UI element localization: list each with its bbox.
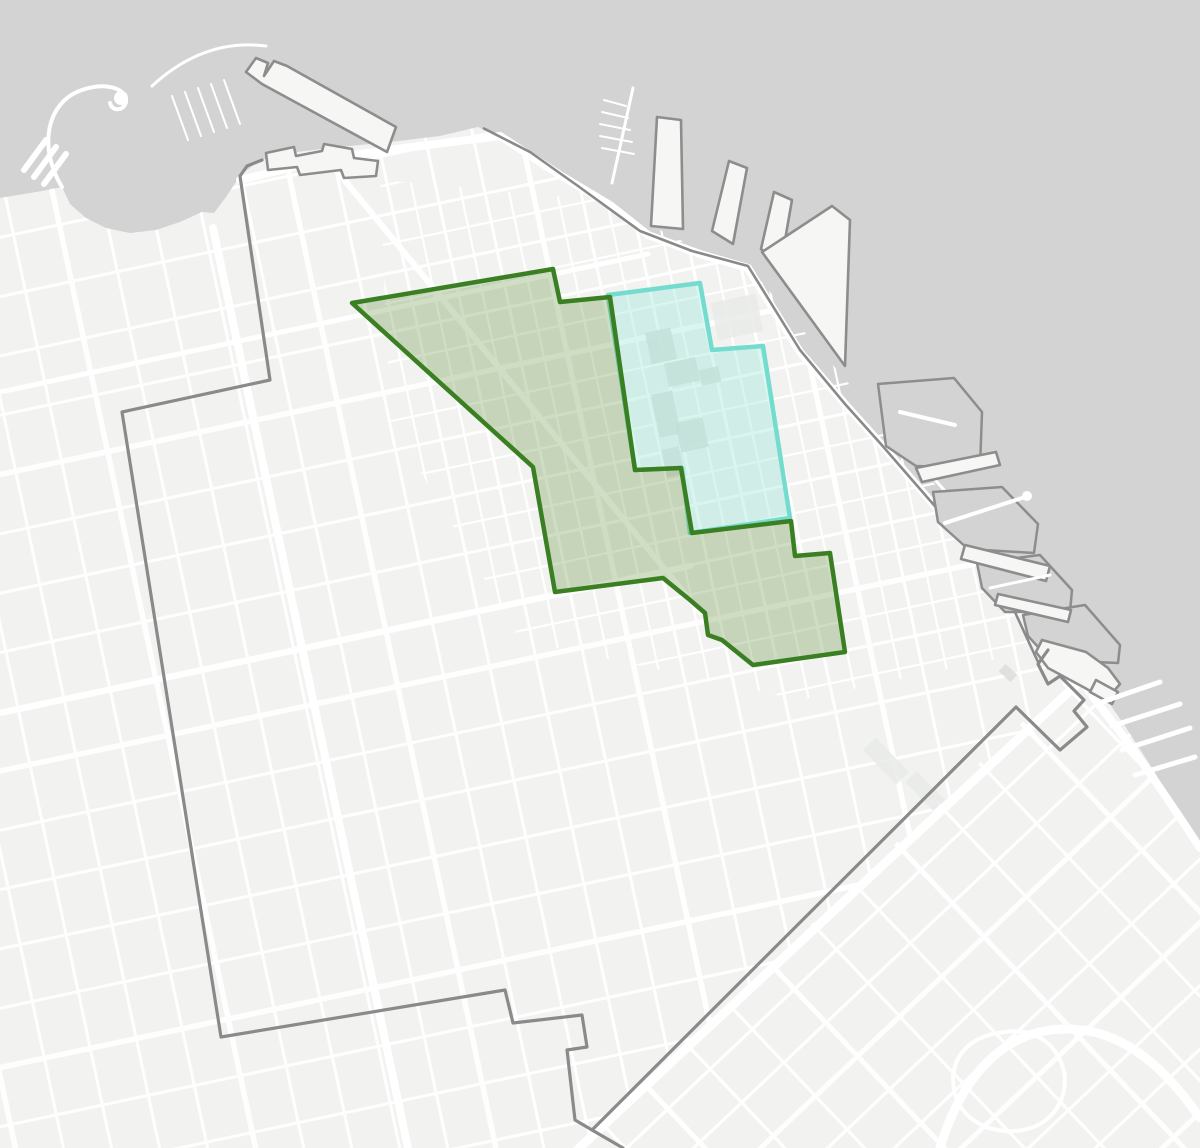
municipal-pier-knob [114, 91, 128, 105]
map-canvas[interactable] [0, 0, 1200, 1148]
pier-39 [651, 117, 683, 229]
basin-pier-knob [1022, 491, 1032, 501]
map-viewport[interactable] [0, 0, 1200, 1148]
